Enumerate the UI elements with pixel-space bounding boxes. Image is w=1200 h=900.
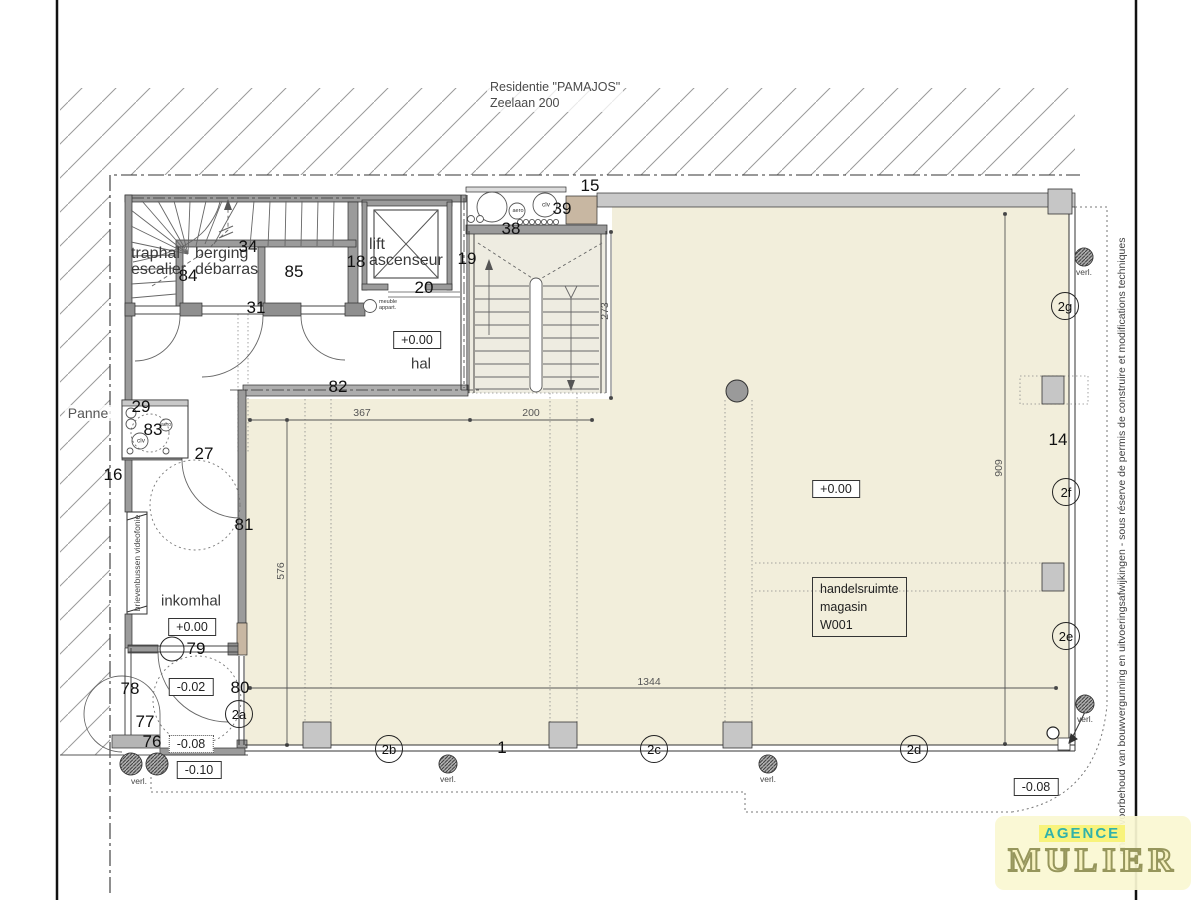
- verl-label-corner: verl.: [1077, 714, 1093, 724]
- level-corner: -0.08: [1014, 778, 1059, 796]
- part-number-80: 80: [231, 678, 250, 698]
- part-number-83: 83: [144, 420, 163, 440]
- part-number-27: 27: [195, 444, 214, 464]
- project-title-line1: Residentie "PAMAJOS": [490, 79, 620, 95]
- level-vestibule: -0.02: [169, 678, 214, 696]
- lift-fr: ascenseur: [369, 253, 443, 269]
- part-number-79: 79: [187, 639, 206, 659]
- room-label-shop: handelsruimte magasin W001: [812, 577, 907, 637]
- shop-nl: handelsruimte: [820, 580, 899, 598]
- project-title-line2: Zeelaan 200: [490, 95, 620, 111]
- intercom-circle: [364, 300, 377, 313]
- part-number-15: 15: [581, 176, 600, 196]
- part-number-16: 16: [104, 465, 123, 485]
- logo-mulier-text: MULIER: [995, 842, 1191, 880]
- level-inkomhal: +0.00: [168, 618, 216, 636]
- dim-576: 576: [275, 562, 287, 580]
- aero-label-meter-room: aero: [161, 422, 171, 428]
- facade-bubble-2b: 2b: [375, 735, 403, 763]
- room-label-hal: hal: [411, 356, 431, 373]
- verl-label-right: verl.: [1076, 267, 1092, 277]
- verl-label-front1: verl.: [440, 774, 456, 784]
- shop-fr: magasin: [820, 598, 899, 616]
- aero-label-top: aero: [512, 208, 523, 214]
- part-number-82: 82: [329, 377, 348, 397]
- clv-label-meter-room: clv: [137, 438, 145, 445]
- neighbour-area-label: Panne: [65, 405, 111, 421]
- verl-label-front2: verl.: [760, 774, 776, 784]
- part-number-84: 84: [179, 266, 198, 286]
- part-number-18: 18: [347, 252, 366, 272]
- level-sidewalk: -0.10: [177, 761, 222, 779]
- shop-unit-code: W001: [820, 616, 899, 634]
- interior-column: [726, 380, 748, 402]
- floor-plan-sheet: Residentie "PAMAJOS" Zeelaan 200 Panne t…: [0, 0, 1200, 900]
- door-bubble: [160, 637, 185, 662]
- mailbox-label: brievenbussen videofonie: [132, 515, 142, 611]
- berging-fr: débarras: [195, 262, 258, 278]
- traphal-nl: traphal: [131, 246, 186, 262]
- room-label-inkomhal: inkomhal: [161, 593, 221, 610]
- disclaimer-note: onder voorbehoud van bouwvergunning en u…: [1116, 206, 1128, 886]
- level-entrance: -0.08: [169, 735, 214, 753]
- facade-bubble-2g: 2g: [1051, 292, 1079, 320]
- facade-bubble-2e: 2e: [1052, 622, 1080, 650]
- level-hal: +0.00: [393, 331, 441, 349]
- room-label-lift: lift ascenseur: [369, 237, 443, 269]
- facade-bubble-2c: 2c: [640, 735, 668, 763]
- part-number-20: 20: [415, 278, 434, 298]
- part-number-77: 77: [136, 712, 155, 732]
- logo-agence-text: AGENCE: [1039, 825, 1125, 842]
- part-number-29: 29: [132, 397, 151, 417]
- part-number-34: 34: [239, 237, 258, 257]
- corner-detail-circle: [1047, 727, 1059, 739]
- part-number-81: 81: [235, 515, 254, 535]
- part-number-76: 76: [143, 732, 162, 752]
- dim-909: 909: [993, 459, 1005, 477]
- dim-200: 200: [522, 407, 540, 419]
- agency-logo: AGENCE MULIER: [995, 816, 1191, 890]
- part-number-1: 1: [497, 738, 506, 758]
- hall-partition-wall: [125, 303, 365, 316]
- part-number-39: 39: [553, 199, 572, 219]
- part-number-31: 31: [247, 298, 266, 318]
- verl-label-entrance: verl.: [131, 776, 147, 786]
- dim-367: 367: [353, 407, 371, 419]
- level-shop: +0.00: [812, 480, 860, 498]
- dim-273: 273: [599, 302, 611, 320]
- clv-label-top: clv: [542, 202, 550, 209]
- intercom-note-line2: appart.: [379, 305, 397, 311]
- part-number-85: 85: [285, 262, 304, 282]
- part-number-78: 78: [121, 679, 140, 699]
- dim-1344: 1344: [637, 676, 660, 688]
- facade-bubble-2d: 2d: [900, 735, 928, 763]
- intercom-note: meuble appart.: [379, 299, 397, 311]
- part-number-19: 19: [458, 249, 477, 269]
- facade-bubble-2f: 2f: [1052, 478, 1080, 506]
- lift-nl: lift: [369, 237, 443, 253]
- project-title: Residentie "PAMAJOS" Zeelaan 200: [487, 79, 623, 112]
- part-number-38: 38: [502, 219, 521, 239]
- part-number-14: 14: [1049, 430, 1068, 450]
- facade-bubble-2a: 2a: [225, 700, 253, 728]
